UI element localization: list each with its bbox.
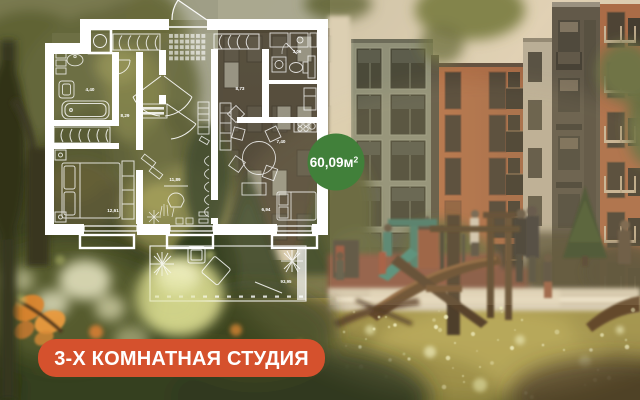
svg-text:3-Х КОМНАТНАЯ СТУДИЯ: 3-Х КОМНАТНАЯ СТУДИЯ bbox=[54, 348, 309, 370]
svg-text:8,73: 8,73 bbox=[236, 86, 245, 91]
svg-text:7,40: 7,40 bbox=[277, 139, 286, 144]
svg-text:93,95: 93,95 bbox=[281, 279, 293, 284]
svg-text:6,94: 6,94 bbox=[262, 207, 271, 212]
svg-text:8,29: 8,29 bbox=[121, 113, 130, 118]
svg-text:11,89: 11,89 bbox=[169, 177, 181, 182]
svg-text:3,06: 3,06 bbox=[293, 49, 302, 54]
svg-text:12,61: 12,61 bbox=[107, 208, 119, 213]
svg-text:60,09м2: 60,09м2 bbox=[310, 155, 359, 171]
svg-text:4,40: 4,40 bbox=[86, 87, 95, 92]
